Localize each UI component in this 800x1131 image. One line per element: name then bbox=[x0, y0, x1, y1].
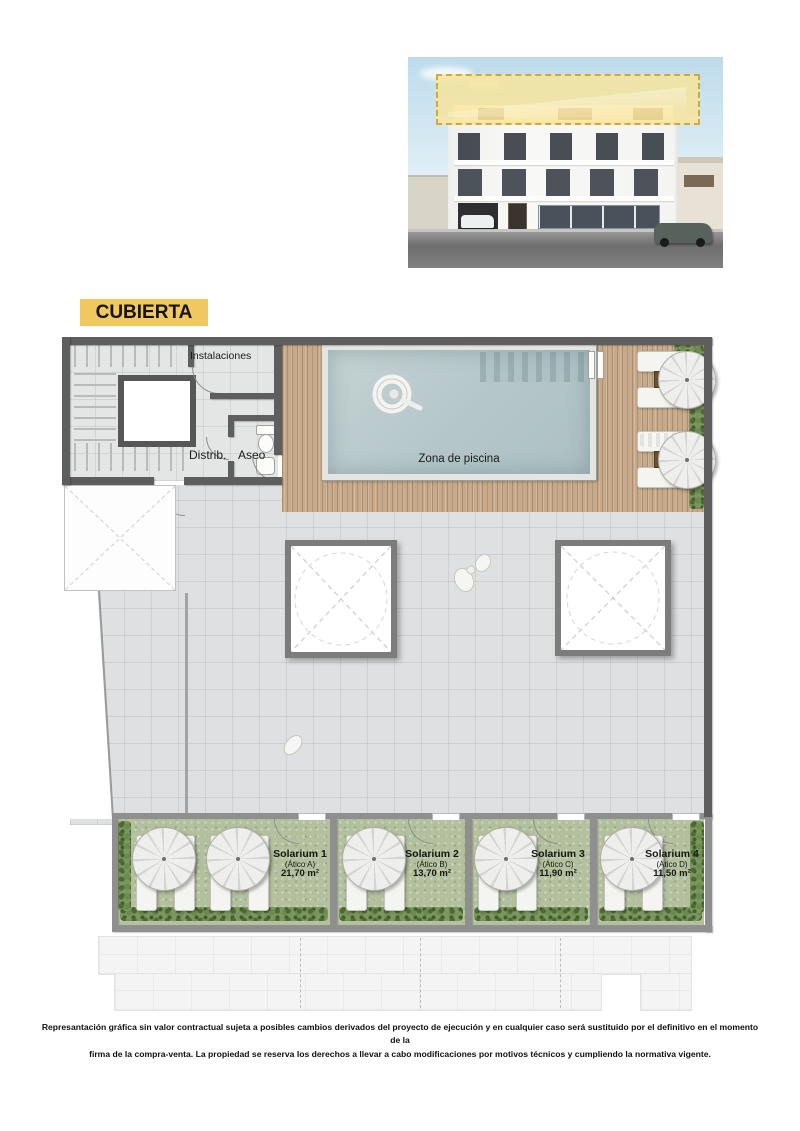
hedge bbox=[118, 821, 131, 911]
lower-floor-outline bbox=[114, 973, 602, 1011]
solarium-gate bbox=[298, 813, 326, 821]
stairs-lower-flight bbox=[74, 443, 186, 471]
solarium-gate bbox=[557, 813, 585, 821]
skylight bbox=[555, 540, 671, 656]
outer-wall-left bbox=[62, 337, 70, 485]
solarium-3-label: Solarium 3 (Ático C) 11,90 m² bbox=[526, 848, 590, 880]
solarium-divider-wall bbox=[465, 819, 472, 929]
outer-wall-right-lower bbox=[705, 817, 712, 932]
solarium-gate bbox=[432, 813, 460, 821]
solarium-2-label: Solarium 2 (Ático B) 13,70 m² bbox=[400, 848, 464, 880]
ladder-icon bbox=[597, 351, 604, 379]
render-car-wheel bbox=[696, 238, 705, 247]
solarium-gate bbox=[672, 813, 700, 821]
lower-floor-outline bbox=[98, 936, 692, 975]
aseo-wall bbox=[228, 421, 234, 437]
swim-ring-icon bbox=[370, 372, 426, 420]
lower-floor-divider bbox=[300, 938, 302, 1008]
stairs-left-flight bbox=[74, 369, 116, 441]
render-windows-row-upper bbox=[458, 133, 670, 160]
umbrella-icon bbox=[342, 827, 406, 891]
render-storefront bbox=[538, 205, 660, 229]
stairs-upper-flight bbox=[74, 345, 174, 367]
page-title: CUBIERTA bbox=[80, 299, 208, 326]
floor-plan: Zona de piscina bbox=[60, 335, 722, 935]
skylight-cross bbox=[561, 546, 665, 650]
disclaimer-line-1: Represantación gráfica sin valor contrac… bbox=[40, 1021, 760, 1048]
aseo-wall bbox=[228, 415, 278, 421]
stair-block-bottom-wall bbox=[62, 477, 154, 485]
solarium-divider-wall bbox=[590, 819, 597, 929]
person-icon bbox=[278, 730, 308, 760]
elevator-shaft bbox=[118, 375, 196, 447]
render-balcony-slab bbox=[454, 196, 674, 201]
stair-block-bottom-wall bbox=[184, 477, 282, 485]
render-car-wheel bbox=[660, 238, 669, 247]
render-windows-row-lower bbox=[458, 169, 670, 196]
lightwell-cross bbox=[65, 486, 175, 590]
ladder-icon bbox=[588, 351, 595, 379]
lower-floor-divider bbox=[420, 938, 422, 1008]
outer-wall-right bbox=[704, 337, 712, 817]
umbrella-icon bbox=[132, 827, 196, 891]
solarium-1-label: Solarium 1 (Ático A) 21,70 m² bbox=[268, 848, 332, 880]
umbrella-icon bbox=[206, 827, 270, 891]
pool-steps-shade bbox=[480, 352, 584, 382]
lower-floor-divider bbox=[560, 938, 562, 1008]
outer-wall-top bbox=[62, 337, 712, 345]
solarium-left-wall bbox=[112, 819, 118, 929]
solarium-bottom-wall bbox=[112, 925, 712, 932]
skylight-cross bbox=[291, 546, 391, 652]
render-balcony-slab bbox=[454, 160, 674, 165]
render-neighbor-right bbox=[676, 157, 723, 233]
lightwell bbox=[64, 485, 176, 591]
disclaimer: Represantación gráfica sin valor contrac… bbox=[40, 1021, 760, 1061]
lower-floor-outline bbox=[640, 973, 692, 1011]
solarium-4-label: Solarium 4 (Ático D) 11,50 m² bbox=[640, 848, 704, 880]
instalaciones-label: Instalaciones bbox=[190, 350, 251, 362]
render-neighbor-left bbox=[408, 175, 452, 235]
page-title-text: CUBIERTA bbox=[96, 302, 193, 324]
building-render bbox=[408, 57, 723, 268]
interior-wall bbox=[210, 393, 278, 399]
page: CUBIERTA Zona de piscina bbox=[0, 0, 800, 1131]
distrib-label: Distrib. bbox=[189, 448, 226, 462]
render-neighbor-window bbox=[684, 175, 714, 187]
person-icon bbox=[450, 553, 494, 595]
stair-block-right-wall bbox=[274, 337, 282, 455]
terrace-divider-wall bbox=[185, 593, 188, 818]
disclaimer-line-2: firma de la compra-venta. La propiedad s… bbox=[40, 1048, 760, 1061]
render-car-white bbox=[461, 215, 494, 228]
pool-label: Zona de piscina bbox=[418, 453, 499, 465]
pool: Zona de piscina bbox=[322, 344, 596, 480]
skylight bbox=[285, 540, 397, 658]
